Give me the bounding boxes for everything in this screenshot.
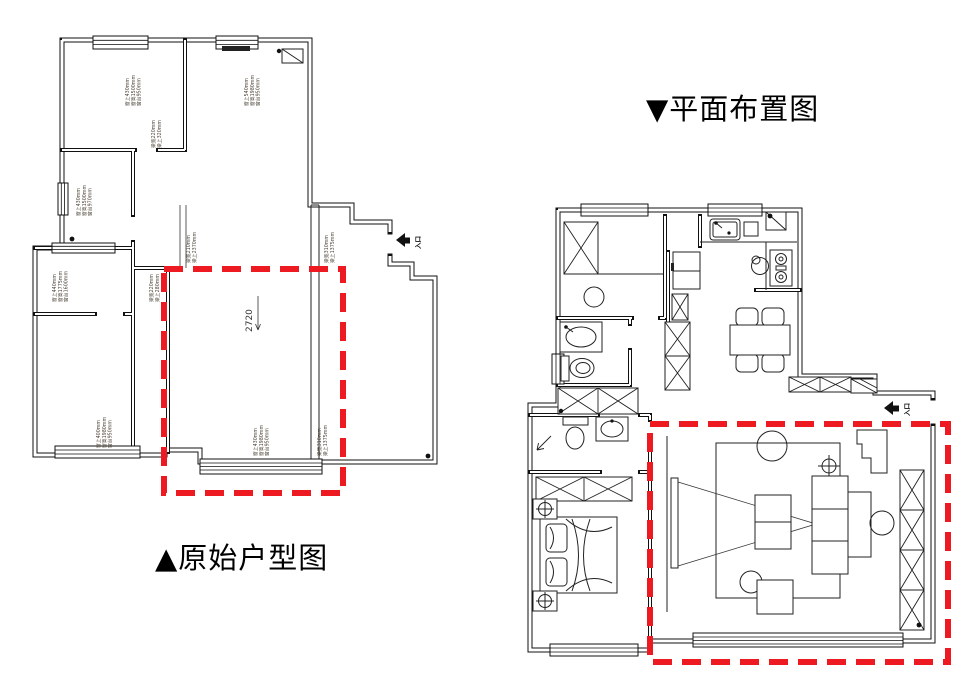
dining-table [730, 325, 790, 355]
wardrobe [564, 222, 598, 274]
coffee-table [755, 495, 791, 549]
measurement-labels: 窗上430mm窗高1500mm窗台950mm梁宽220mm梁上320mm窗上54… [51, 75, 336, 456]
entry-label: 入口 [903, 403, 911, 417]
measurement-line: 窗台950mm [255, 78, 262, 106]
layout-plan-title: ▼平面布置图 [646, 92, 819, 126]
measurement-line: 窗高1980mm [101, 417, 108, 448]
chair [736, 308, 758, 326]
measurement-line: 窗高1500mm [81, 185, 88, 216]
bookshelf [900, 470, 924, 630]
floor-plans-canvas: 2720 入口 窗上430mm窗高1500mm窗台950mm梁宽220mm梁上3… [0, 0, 956, 700]
measurement-line: 窗台970mm [87, 188, 94, 216]
dining-set [730, 308, 790, 372]
bathroom-2 [537, 417, 628, 450]
tv-view-cone [678, 482, 816, 566]
dimension-2720: 2720 [245, 296, 261, 332]
measurement-line: 窗上400mm [95, 420, 102, 448]
page: 2720 入口 窗上430mm窗高1500mm窗台950mm梁宽220mm梁上3… [0, 0, 956, 700]
measurement-line: 窗台950mm [107, 420, 114, 448]
measurement-line: 窗上540mm [243, 78, 250, 106]
shoe-cabinet [789, 377, 851, 392]
window-bottom-center [200, 459, 322, 474]
dimension-label: 2720 [245, 309, 255, 332]
shower-arrow-icon [537, 436, 551, 450]
original-plan-title: ▲原始户型图 [155, 541, 328, 575]
measurement-label-bottom-window: 窗上430mm窗高1980mm窗台950mm [252, 425, 271, 456]
tv-screen [671, 478, 678, 568]
stove [770, 250, 792, 286]
measurement-label-room2-window: 窗上430mm窗高1500mm窗台970mm [75, 185, 94, 216]
cutting-board [744, 222, 758, 236]
measurement-line: 窗上430mm [252, 428, 259, 456]
entry-label: 入口 [414, 236, 422, 250]
hinge-dot [426, 454, 431, 459]
corner-unit [766, 212, 786, 230]
reading-stool [740, 571, 793, 614]
measurement-line: 窗高1500mm [130, 75, 137, 106]
hinge-dot [70, 237, 75, 242]
hall-cabinet [558, 388, 638, 414]
nightstand-top [533, 499, 557, 519]
stool [584, 287, 604, 307]
flue-column [857, 430, 887, 473]
window-room3 [52, 243, 115, 253]
chair [736, 354, 758, 372]
window-bedroom [550, 644, 638, 656]
measurement-line: 梁宽310mm [316, 428, 323, 456]
measurement-line: 梁宽310mm [323, 235, 330, 263]
beam-lines [180, 205, 186, 268]
bathroom-1 [560, 322, 602, 381]
measurement-label-room3-window: 窗上440mm窗高1775mm窗台1600mm [51, 271, 70, 302]
measurement-line: 窗上440mm [51, 274, 58, 302]
bedroom [533, 477, 632, 611]
measurement-line: 窗高1775mm [57, 271, 64, 302]
sofa-chaise [848, 492, 871, 557]
measurement-line: 梁上1375mm [329, 232, 336, 263]
entry-marker: 入口 [396, 233, 422, 250]
bed [540, 517, 617, 593]
side-table [870, 511, 894, 535]
door-symbol [277, 49, 303, 63]
measurement-label-living-top-window: 窗上540mm窗高1980mm窗台950mm [243, 75, 262, 106]
wardrobe-bedroom [536, 477, 632, 501]
entry-bench [851, 379, 877, 393]
chair [762, 308, 784, 326]
toilet [561, 356, 594, 381]
measurement-line: 梁上1375mm [322, 425, 329, 456]
entry-zone: 入口 [789, 377, 911, 417]
measurement-line: 梁宽210mm [185, 235, 192, 263]
kitchen-sink [710, 219, 740, 240]
layout-floor-plan: 入口 [530, 204, 948, 662]
window-left-wall [58, 183, 68, 215]
measurement-label-right-beam-top: 梁宽310mm梁上1375mm [323, 232, 336, 263]
measurement-line: 窗台950mm [264, 428, 271, 456]
measurement-line: 梁上2370mm [191, 232, 198, 263]
measurement-label-room4-window: 窗上400mm窗高1980mm窗台950mm [95, 417, 114, 448]
measurement-line: 窗上430mm [75, 188, 82, 216]
measurement-line: 梁宽220mm [148, 274, 155, 302]
entry-arrow-icon [396, 233, 410, 247]
measurement-label-center-beam: 梁宽210mm梁上2370mm [185, 232, 198, 263]
measurement-line: 梁上280mm [154, 274, 161, 302]
measurement-label-bedroom1-beam: 梁宽220mm梁上320mm [150, 120, 163, 148]
measurement-label-bedroom1-window: 窗上430mm窗高1500mm窗台950mm [124, 75, 143, 106]
fridge [671, 252, 700, 289]
bathroom-sink-2 [596, 417, 628, 441]
sofa [812, 476, 894, 574]
window-living [693, 633, 903, 647]
measurement-line: 梁宽220mm [150, 120, 157, 148]
measurement-line: 窗台1600mm [63, 271, 70, 302]
measurement-line: 窗台950mm [136, 78, 143, 106]
window-top-left [93, 36, 148, 49]
window-kitchen [708, 204, 762, 216]
floor-lamp [818, 455, 840, 477]
radiator-mark [222, 46, 250, 51]
toilet-2 [563, 417, 588, 449]
bathroom-sink [560, 322, 602, 352]
living-room [667, 430, 924, 630]
measurement-line: 窗高1980mm [258, 425, 265, 456]
chair [762, 354, 784, 372]
original-floor-plan: 2720 入口 窗上430mm窗高1500mm窗台950mm梁宽220mm梁上3… [35, 36, 435, 493]
plant [757, 431, 787, 461]
window-wall [311, 205, 319, 462]
measurement-line: 梁上320mm [156, 120, 163, 148]
measurement-line: 窗上430mm [124, 78, 131, 106]
measurement-line: 窗高1980mm [249, 75, 256, 106]
measurement-label-redbox-beam: 梁宽220mm梁上280mm [148, 274, 161, 302]
window-study [581, 204, 648, 216]
measurement-label-right-beam-bottom: 梁宽310mm梁上1375mm [316, 425, 329, 456]
nightstand-bottom [533, 591, 557, 611]
entry-arrow-icon [884, 401, 899, 415]
study-room [564, 222, 663, 307]
